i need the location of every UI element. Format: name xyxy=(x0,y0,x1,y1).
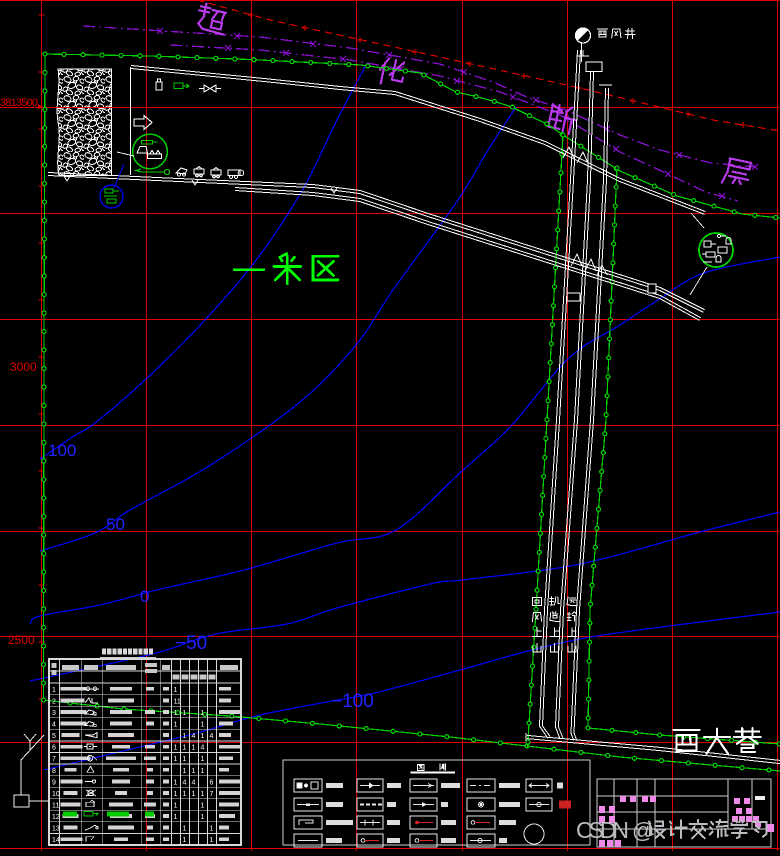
svg-text:1: 1 xyxy=(174,710,178,717)
svg-text:1: 1 xyxy=(174,745,178,752)
svg-text:1: 1 xyxy=(174,803,178,810)
svg-text:−50: −50 xyxy=(175,633,207,654)
svg-text:1: 1 xyxy=(201,791,205,798)
svg-text:1: 1 xyxy=(174,687,178,694)
svg-text:11: 11 xyxy=(52,803,59,810)
svg-text:1: 1 xyxy=(174,814,178,821)
svg-text:1: 1 xyxy=(201,768,205,775)
svg-text:4: 4 xyxy=(201,745,205,752)
svg-text:1: 1 xyxy=(174,779,178,786)
svg-text:0: 0 xyxy=(140,587,149,606)
svg-text:1: 1 xyxy=(174,791,178,798)
svg-text:@: @ xyxy=(632,818,654,843)
svg-text:1: 1 xyxy=(210,837,214,844)
svg-text:7: 7 xyxy=(210,791,214,798)
svg-text:10: 10 xyxy=(52,791,60,798)
svg-text:1: 1 xyxy=(201,756,205,763)
svg-text:4: 4 xyxy=(210,733,214,740)
svg-text:14: 14 xyxy=(52,837,60,844)
svg-text:5: 5 xyxy=(52,733,56,740)
svg-text:CSDN: CSDN xyxy=(576,817,629,843)
svg-text:1: 1 xyxy=(192,768,196,775)
svg-text:3000: 3000 xyxy=(10,360,37,374)
svg-text:1: 1 xyxy=(210,826,214,833)
svg-text:100: 100 xyxy=(48,441,76,460)
svg-text:3: 3 xyxy=(52,710,56,717)
svg-text:1: 1 xyxy=(183,710,187,717)
svg-text:8: 8 xyxy=(52,768,56,775)
svg-text:1: 1 xyxy=(201,803,205,810)
svg-text:12: 12 xyxy=(52,814,60,821)
svg-text:4: 4 xyxy=(183,779,187,786)
svg-text:1: 1 xyxy=(183,745,187,752)
svg-text:−100: −100 xyxy=(331,691,374,712)
svg-text:1: 1 xyxy=(201,814,205,821)
svg-text:3813500: 3813500 xyxy=(0,97,38,109)
svg-text:1: 1 xyxy=(183,756,187,763)
svg-text:1: 1 xyxy=(201,722,205,729)
svg-text:1: 1 xyxy=(201,710,205,717)
svg-text:11: 11 xyxy=(174,698,181,705)
svg-text:50: 50 xyxy=(106,515,125,534)
svg-text:7: 7 xyxy=(52,756,56,763)
svg-text:2: 2 xyxy=(52,698,56,705)
svg-text:1: 1 xyxy=(201,733,205,740)
svg-text:6: 6 xyxy=(52,745,56,752)
svg-text:1: 1 xyxy=(174,722,178,729)
svg-text:4: 4 xyxy=(192,779,196,786)
svg-text:4: 4 xyxy=(52,722,56,729)
svg-text:1: 1 xyxy=(192,791,196,798)
svg-text:1: 1 xyxy=(183,826,187,833)
svg-text:1: 1 xyxy=(183,733,187,740)
svg-text:1: 1 xyxy=(183,768,187,775)
svg-text:6: 6 xyxy=(210,779,214,786)
svg-text:1: 1 xyxy=(52,687,56,694)
svg-text:1: 1 xyxy=(174,756,178,763)
svg-text:9: 9 xyxy=(52,779,56,786)
svg-text:2500: 2500 xyxy=(8,633,35,647)
svg-text:13: 13 xyxy=(52,826,60,833)
svg-text:1: 1 xyxy=(192,745,196,752)
svg-text:1: 1 xyxy=(183,837,187,844)
svg-text:4: 4 xyxy=(192,733,196,740)
svg-text:1: 1 xyxy=(183,791,187,798)
